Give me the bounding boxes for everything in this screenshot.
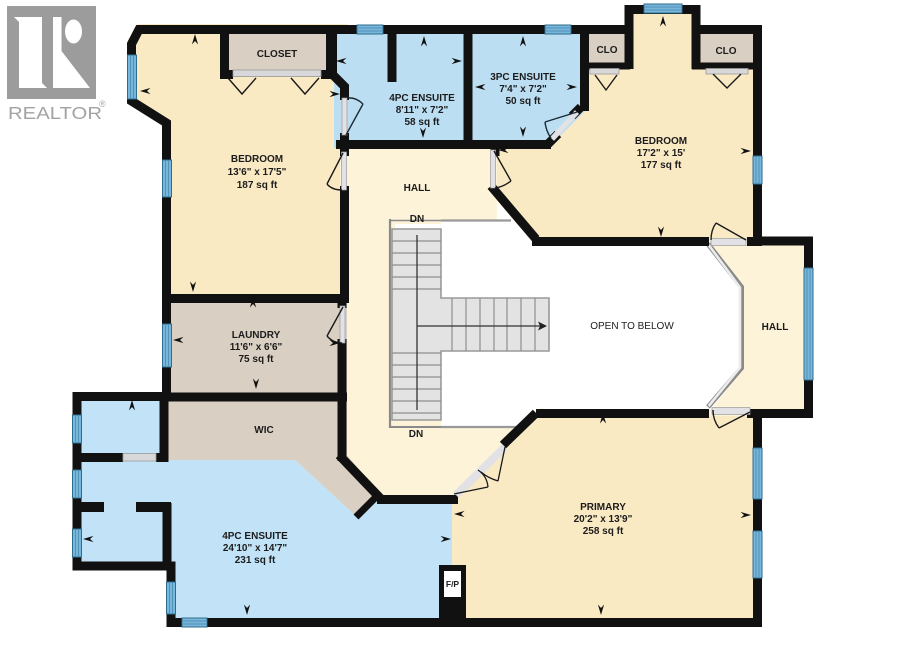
svg-text:231 sq ft: 231 sq ft [235, 555, 276, 566]
svg-text:BEDROOM: BEDROOM [635, 136, 687, 147]
svg-text:258 sq ft: 258 sq ft [583, 526, 624, 537]
svg-text:17'2" x 15': 17'2" x 15' [637, 148, 685, 159]
svg-text:177 sq ft: 177 sq ft [641, 160, 682, 171]
svg-text:DN: DN [409, 429, 423, 440]
svg-text:BEDROOM: BEDROOM [231, 154, 283, 165]
svg-text:WIC: WIC [254, 425, 273, 436]
svg-text:REALTOR: REALTOR [8, 103, 102, 123]
svg-text:3PC ENSUITE: 3PC ENSUITE [490, 72, 556, 83]
svg-text:4PC ENSUITE: 4PC ENSUITE [389, 93, 455, 104]
svg-text:CLO: CLO [596, 45, 617, 56]
svg-text:187 sq ft: 187 sq ft [237, 180, 278, 191]
svg-text:8'11" x 7'2": 8'11" x 7'2" [396, 105, 449, 116]
svg-text:®: ® [99, 99, 106, 109]
svg-text:CLO: CLO [715, 46, 736, 57]
svg-text:11'6" x 6'6": 11'6" x 6'6" [230, 342, 283, 353]
svg-text:CLOSET: CLOSET [257, 49, 298, 60]
svg-text:DN: DN [410, 214, 424, 225]
svg-text:F/P: F/P [446, 579, 460, 589]
svg-text:50 sq ft: 50 sq ft [505, 96, 541, 107]
svg-text:7'4" x 7'2": 7'4" x 7'2" [499, 84, 547, 95]
svg-text:HALL: HALL [762, 322, 789, 333]
svg-text:4PC ENSUITE: 4PC ENSUITE [222, 531, 288, 542]
svg-text:75 sq ft: 75 sq ft [238, 354, 274, 365]
svg-text:LAUNDRY: LAUNDRY [232, 330, 281, 341]
svg-text:24'10" x 14'7": 24'10" x 14'7" [223, 543, 288, 554]
svg-text:58 sq ft: 58 sq ft [404, 117, 440, 128]
svg-text:OPEN TO BELOW: OPEN TO BELOW [590, 321, 674, 332]
svg-text:PRIMARY: PRIMARY [580, 502, 626, 513]
svg-text:HALL: HALL [404, 183, 431, 194]
svg-text:13'6" x 17'5": 13'6" x 17'5" [228, 167, 287, 178]
svg-text:20'2" x 13'9": 20'2" x 13'9" [574, 514, 633, 525]
